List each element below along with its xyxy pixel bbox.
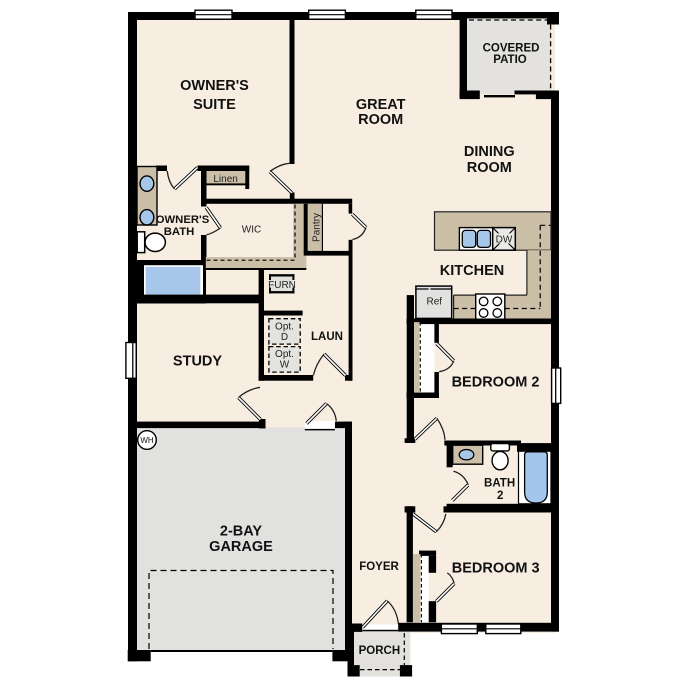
svg-text:GREAT: GREAT [356,97,406,113]
svg-text:GARAGE: GARAGE [209,539,273,555]
svg-text:Linen: Linen [213,174,237,185]
svg-text:STUDY: STUDY [173,354,222,370]
svg-text:BATH: BATH [164,226,195,238]
svg-text:PATIO: PATIO [493,54,526,66]
svg-text:COVERED: COVERED [483,43,540,55]
svg-text:PORCH: PORCH [359,645,401,657]
svg-text:Ref: Ref [427,296,443,307]
svg-text:ROOM: ROOM [467,160,512,176]
svg-text:KITCHEN: KITCHEN [440,263,504,279]
svg-text:Pantry: Pantry [312,213,323,242]
svg-text:WIC: WIC [242,225,261,236]
svg-text:BEDROOM 3: BEDROOM 3 [452,561,540,577]
svg-text:DINING: DINING [464,144,515,160]
svg-text:LAUN: LAUN [311,331,343,343]
svg-text:OWNER'S: OWNER'S [156,214,210,226]
svg-text:Opt.: Opt. [275,349,294,360]
svg-text:OWNER'S: OWNER'S [180,78,249,94]
svg-text:W: W [280,359,290,370]
svg-text:SUITE: SUITE [193,97,236,113]
svg-text:DW: DW [496,234,513,245]
svg-text:2-BAY: 2-BAY [220,524,263,540]
svg-text:2: 2 [497,490,503,502]
svg-text:WH: WH [140,436,154,445]
svg-text:BEDROOM 2: BEDROOM 2 [452,375,540,391]
svg-text:FOYER: FOYER [359,561,399,573]
svg-text:BATH: BATH [484,477,515,489]
svg-text:FURN: FURN [268,280,296,291]
svg-text:ROOM: ROOM [358,112,403,128]
svg-text:Opt.: Opt. [275,321,294,332]
svg-text:D: D [281,332,288,343]
